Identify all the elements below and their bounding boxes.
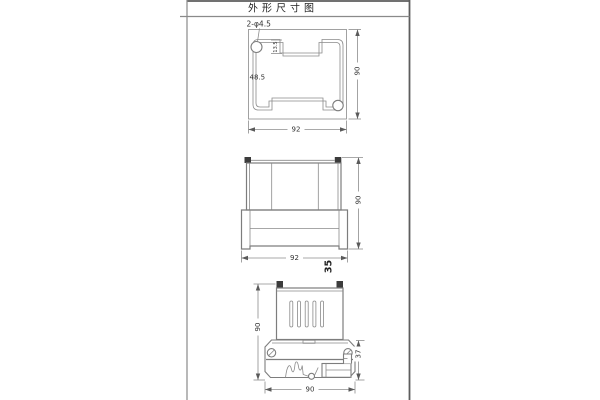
arrow-icon xyxy=(349,387,356,391)
terminal-screw-left xyxy=(245,157,252,163)
top-view-height-label: 90 xyxy=(354,67,362,76)
top-view-width-label: 92 xyxy=(292,126,301,134)
mounting-hole-top-left xyxy=(251,42,262,53)
arrow-icon xyxy=(256,284,260,291)
arrow-icon xyxy=(355,113,359,120)
vent-slot xyxy=(290,301,293,327)
dimension-drawing-canvas: 外形尺寸图 2-φ4.5 13.5 48.5 90 92 xyxy=(0,0,600,400)
spring-pin xyxy=(309,373,315,379)
terminal-screw-right xyxy=(335,157,342,163)
arrow-icon xyxy=(356,341,360,348)
arrow-icon xyxy=(356,374,360,381)
arrow-icon xyxy=(256,374,260,381)
arrow-icon xyxy=(356,243,360,250)
vent-slot xyxy=(321,301,324,327)
arrow-icon xyxy=(249,127,256,131)
top-view-body-contour-outer xyxy=(253,40,343,111)
page-title: 外形尺寸图 xyxy=(248,2,318,15)
arrow-icon xyxy=(356,158,360,165)
top-view: 2-φ4.5 13.5 48.5 90 92 xyxy=(247,20,364,135)
side-view-width-label: 90 xyxy=(306,386,315,394)
mounting-hole-bottom-right xyxy=(333,100,343,110)
arrow-icon xyxy=(340,127,347,131)
terminal-screw-right xyxy=(337,281,344,288)
terminal-screw-left xyxy=(277,281,284,288)
vent-slot xyxy=(298,301,301,327)
inner-width-label: 48.5 xyxy=(250,74,266,82)
arrow-icon xyxy=(242,256,249,260)
depth-label: 35 xyxy=(324,260,335,273)
upper-body xyxy=(247,163,342,210)
front-view-height-label: 90 xyxy=(355,196,363,205)
arrow-icon xyxy=(265,387,272,391)
notch-depth-label: 13.5 xyxy=(273,41,279,52)
side-body xyxy=(277,288,344,340)
top-view-body-contour-inner xyxy=(256,43,340,108)
rail-height-label: 37 xyxy=(355,350,363,359)
front-view: 90 92 35 xyxy=(242,157,365,273)
side-view: 90 37 90 xyxy=(253,281,365,394)
vent-slot xyxy=(305,301,308,327)
arrow-icon xyxy=(341,256,348,260)
side-view-height-label: 90 xyxy=(254,323,262,332)
arrow-icon xyxy=(355,30,359,37)
base-body xyxy=(242,210,348,249)
vent-slot xyxy=(313,301,316,327)
page: 外形尺寸图 2-φ4.5 13.5 48.5 90 92 xyxy=(0,0,600,400)
hole-label: 2-φ4.5 xyxy=(247,20,272,29)
front-view-width-label: 92 xyxy=(290,254,299,262)
